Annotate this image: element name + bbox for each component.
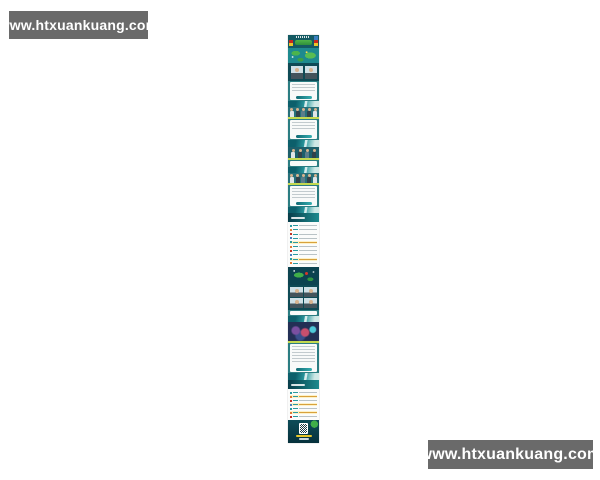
agenda-row <box>290 241 317 244</box>
group-photo-3 <box>288 173 319 185</box>
bullet-icon <box>290 400 292 402</box>
agenda-row <box>290 258 317 261</box>
footer-yellow-text <box>296 435 312 437</box>
person-figure <box>298 149 302 158</box>
footer-white-text <box>299 438 309 440</box>
section-title-text <box>291 217 305 219</box>
person-figure <box>290 174 294 183</box>
agenda-row <box>290 415 317 418</box>
person-figure <box>307 174 311 183</box>
section-title-text <box>291 384 305 386</box>
text-card <box>290 344 317 372</box>
portrait-photo <box>304 287 317 297</box>
agenda-row <box>290 407 317 410</box>
wave-divider-2 <box>288 140 319 147</box>
bullet-icon <box>290 408 292 410</box>
bullet-icon <box>290 392 292 394</box>
agenda-row <box>290 228 317 231</box>
placeholder-text-lines <box>292 122 315 131</box>
guest-portrait-grid <box>288 285 319 310</box>
left-flag-icon <box>289 40 293 46</box>
header-tiny-text <box>296 36 310 38</box>
bullet-icon <box>290 396 292 398</box>
person-figure <box>301 108 305 117</box>
portrait-photo <box>304 298 317 308</box>
watermark-text: www.htxuankuang.com <box>420 446 600 464</box>
bullet-icon <box>290 241 292 243</box>
bullet-icon <box>290 237 292 239</box>
cta-pill-button <box>296 368 312 371</box>
summary-text-card <box>288 343 319 373</box>
speaker-portraits <box>288 63 319 81</box>
bullet-icon <box>290 254 292 256</box>
person-figure <box>307 108 311 117</box>
bullet-icon <box>290 229 292 231</box>
portrait-photo <box>291 66 303 79</box>
agenda-row <box>290 391 317 394</box>
text-card <box>290 82 317 100</box>
bullet-icon <box>290 258 292 260</box>
agenda-row <box>290 399 317 402</box>
portrait-photo <box>305 66 317 79</box>
placeholder-text-lines <box>292 346 315 364</box>
wave-divider-6 <box>288 373 319 380</box>
agenda-row <box>290 245 317 248</box>
placeholder-text-lines <box>292 84 315 92</box>
bullet-icon <box>290 250 292 252</box>
dark-map-section <box>288 267 319 285</box>
agenda-row <box>290 395 317 398</box>
agenda-row <box>290 262 317 265</box>
bullet-icon <box>290 262 292 264</box>
agenda-row <box>290 233 317 236</box>
bullet-icon <box>290 416 292 418</box>
bullet-icon <box>290 404 292 406</box>
session-text-card-3 <box>288 185 319 207</box>
agenda-header-2 <box>288 380 319 389</box>
text-card <box>290 161 317 166</box>
agenda-row <box>290 253 317 256</box>
world-map <box>288 48 319 63</box>
agenda-row <box>290 403 317 406</box>
person-figure <box>291 149 295 158</box>
cta-pill-button <box>296 96 312 99</box>
watermark-text: www.htxuankuang.com <box>0 17 158 33</box>
person-figure <box>296 174 300 183</box>
agenda-list-1 <box>288 222 319 267</box>
session-text-card-1 <box>288 119 319 140</box>
title-banner <box>295 40 312 45</box>
person-figure <box>305 149 309 158</box>
person-figure <box>301 174 305 183</box>
text-card <box>290 311 317 315</box>
group-photo-1 <box>288 107 319 119</box>
agenda-row <box>290 224 317 227</box>
right-flag-icon <box>314 40 318 46</box>
placeholder-text-lines <box>292 188 315 198</box>
person-figure <box>312 149 316 158</box>
agenda-row <box>290 249 317 252</box>
corner-logo-icon <box>314 36 318 40</box>
portrait-photo <box>290 298 303 308</box>
session-text-card-2 <box>288 160 319 167</box>
bullet-icon <box>290 412 292 414</box>
intro-text-card <box>288 81 319 101</box>
footer-qr <box>288 420 319 443</box>
agenda-header-1 <box>288 213 319 222</box>
location-dot-icon <box>305 272 308 275</box>
bullet-icon <box>290 233 292 235</box>
header-flags <box>288 35 319 48</box>
bullet-icon <box>290 246 292 248</box>
text-card <box>290 186 317 206</box>
group-photo-2 <box>288 147 319 160</box>
cta-pill-button <box>296 202 312 205</box>
person-figure <box>290 108 294 117</box>
agenda-row <box>290 237 317 240</box>
watermark-bottom-right: www.htxuankuang.com <box>428 440 593 469</box>
bullet-icon <box>290 225 292 227</box>
crowd-photo <box>288 322 319 343</box>
person-figure <box>296 108 300 117</box>
person-figure <box>313 174 317 183</box>
cta-pill-button <box>296 135 312 138</box>
qr-code <box>299 423 308 434</box>
portrait-photo <box>290 287 303 297</box>
agenda-list-2 <box>288 389 319 420</box>
watermark-top-left: www.htxuankuang.com <box>9 11 148 39</box>
person-figure <box>313 108 317 117</box>
long-poster-preview <box>288 35 319 443</box>
text-card <box>290 120 317 139</box>
agenda-row <box>290 411 317 414</box>
